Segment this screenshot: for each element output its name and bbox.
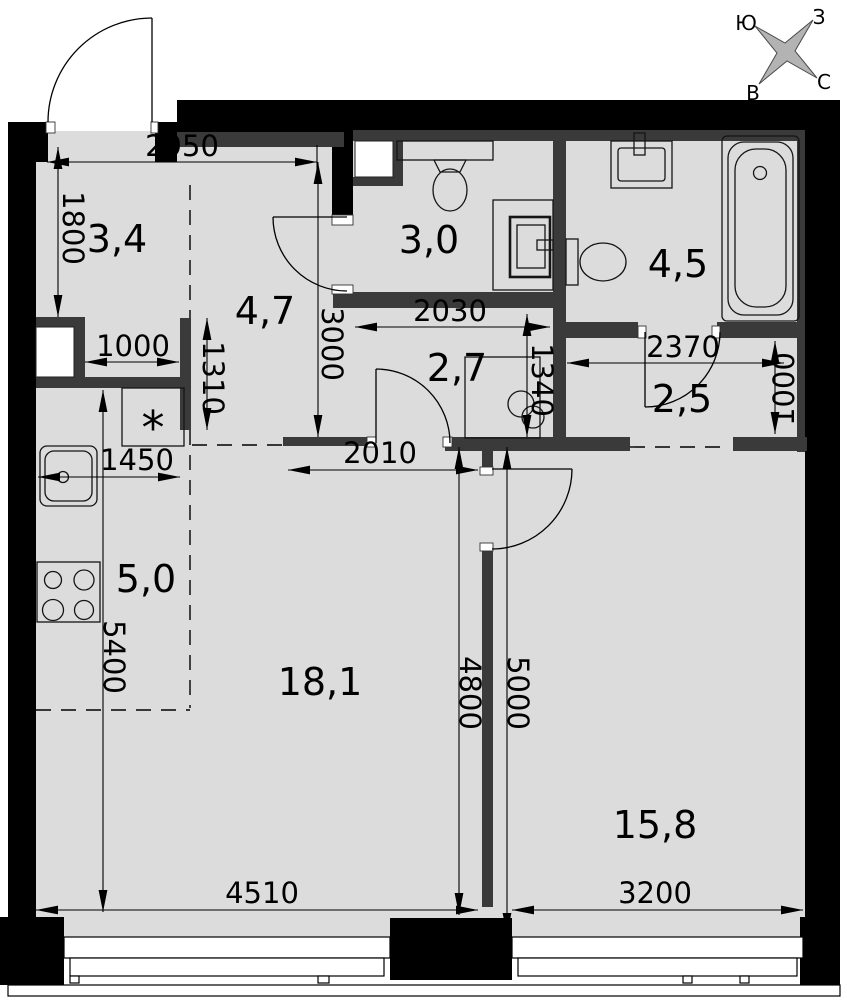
jamb-hall-right [443,437,452,447]
facade-strip [8,985,840,996]
wall-pier-wc [332,100,353,215]
wall-niche-vertical [180,318,191,430]
dim-niche-width: 1000 [85,329,179,363]
jamb-bedroom-bottom [480,543,493,551]
room-label-corridor: 4,7 [235,289,295,333]
compass-west: З [813,5,826,29]
shaft-kitchen-wall-right [74,317,85,377]
svg-text:1340: 1340 [525,343,559,417]
room-label-wardrobe: 2,5 [652,377,712,421]
room-label-hallway: 3,4 [87,217,147,261]
svg-text:4510: 4510 [225,876,299,910]
entry-door [48,18,152,122]
wall-hall-south-mid [445,437,630,451]
wall-hall-south-right [733,437,807,451]
wall-bath-south-right [717,322,800,338]
svg-text:1800: 1800 [56,191,90,265]
room-label-kitchen: 5,0 [116,557,176,601]
svg-text:1310: 1310 [196,341,230,415]
room-label-living: 18,1 [278,660,363,704]
partition-stub [482,446,493,467]
window-right [512,937,803,983]
svg-text:2010: 2010 [343,436,417,470]
jamb-bedroom-top [480,467,493,475]
svg-text:2950: 2950 [145,129,219,163]
pier-bottom-right [800,917,840,985]
jamb-entry-left [46,122,55,133]
svg-text:4800: 4800 [453,656,487,730]
pier-bottom-middle [390,918,512,980]
window-left [64,937,390,983]
svg-text:5000: 5000 [501,656,535,730]
wall-niche-horizontal [36,377,191,388]
shaft-wc [355,141,393,177]
compass-star-icon [755,20,817,84]
svg-text:5400: 5400 [97,620,131,694]
shaft-wc-wall-right [393,141,403,186]
pier-bottom-left [0,917,64,985]
wall-right [805,100,840,985]
svg-text:1450: 1450 [100,443,174,477]
svg-text:2030: 2030 [413,294,487,328]
room-label-wc: 3,0 [399,218,459,262]
svg-text:2370: 2370 [646,330,720,364]
compass-north: С [817,70,831,94]
room-label-hall: 2,7 [427,346,487,390]
wall-top-left [177,100,353,132]
svg-text:1000: 1000 [767,352,801,426]
compass-rose: Ю З В С [735,5,831,105]
wall-entry-left [8,122,48,162]
room-label-bathroom: 4,5 [648,242,708,286]
wall-bath-south-left [566,322,638,338]
shaft-kitchen [36,327,74,377]
floor-plan-svg: * 2950 1800 1000 [0,0,847,1000]
svg-text:3200: 3200 [618,876,692,910]
compass-south: Ю [735,11,757,35]
svg-text:1000: 1000 [96,329,170,363]
wall-left [8,122,36,917]
dim-wardrobe-depth: 1000 [767,341,801,434]
wall-top [353,100,810,130]
room-label-bedroom: 15,8 [613,803,698,847]
floor-plan-page: * 2950 1800 1000 [0,0,847,1000]
compass-east: В [746,81,760,105]
svg-text:3000: 3000 [315,307,349,381]
